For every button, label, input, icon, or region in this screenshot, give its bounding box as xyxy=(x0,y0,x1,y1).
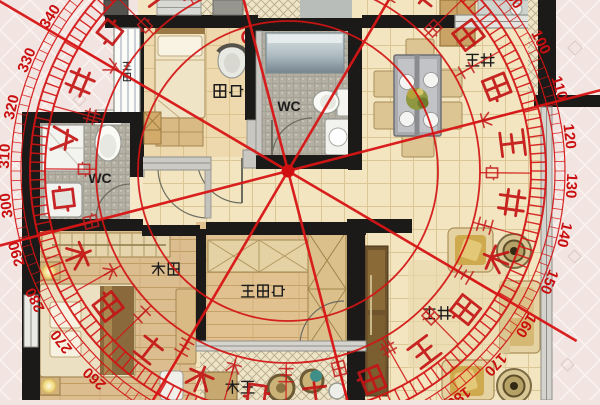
svg-text:120: 120 xyxy=(559,123,579,150)
svg-text:310: 310 xyxy=(0,143,14,169)
svg-text:WC: WC xyxy=(88,170,111,186)
svg-text:WC: WC xyxy=(277,98,300,114)
svg-text:130: 130 xyxy=(562,173,580,199)
